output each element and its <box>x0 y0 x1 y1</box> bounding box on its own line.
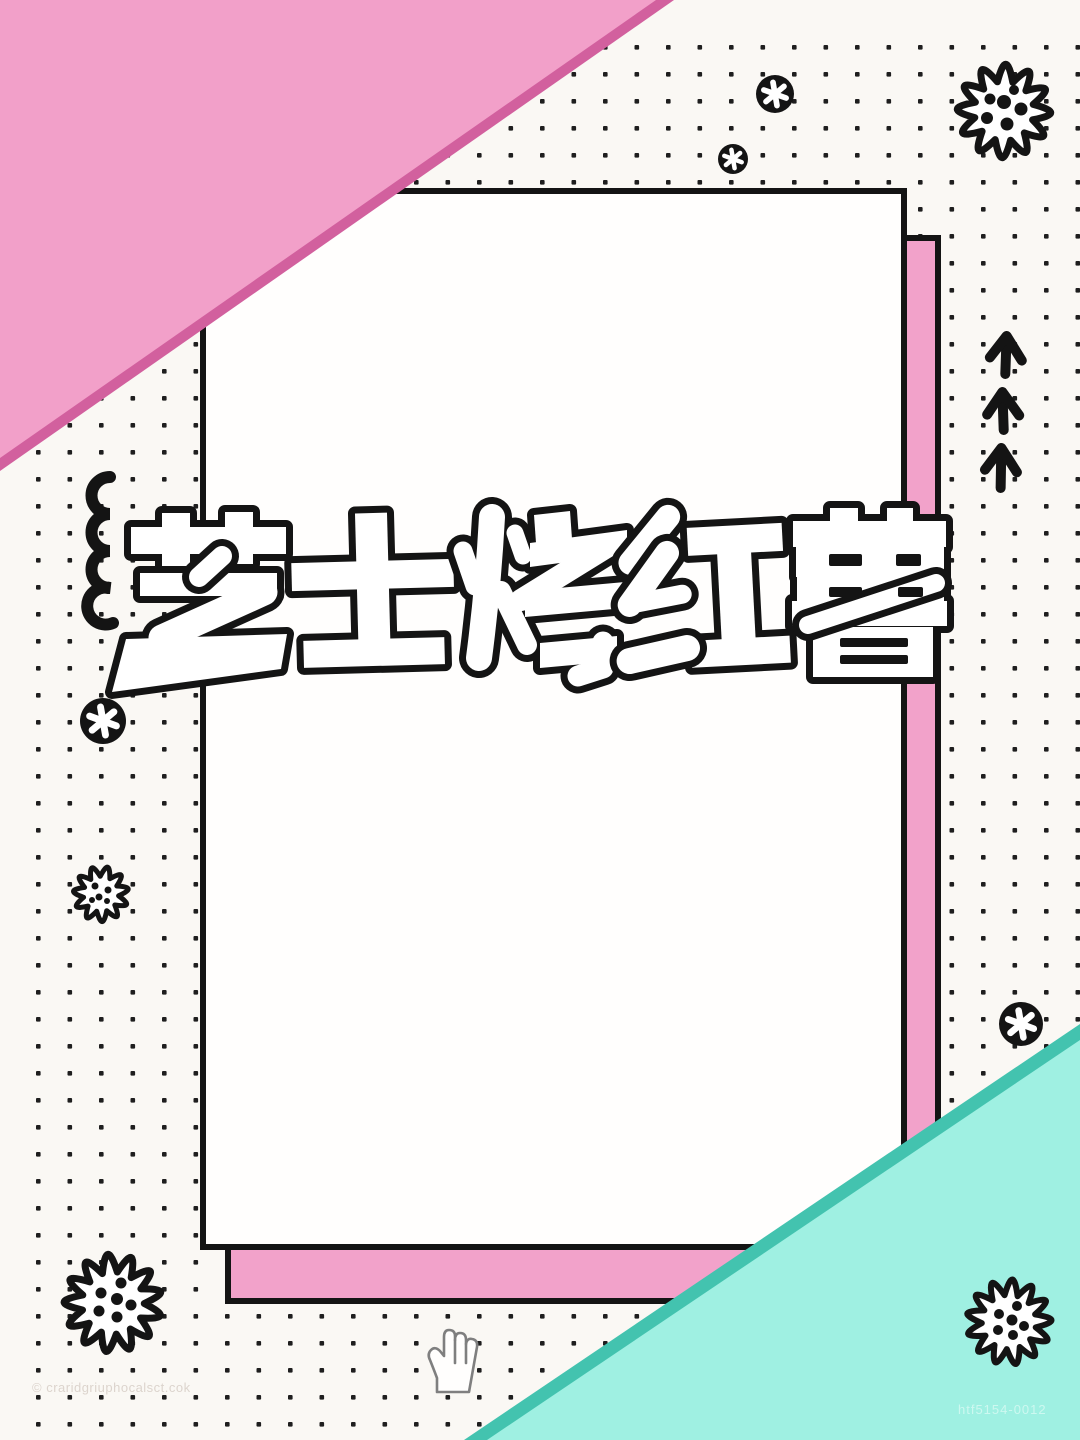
svg-text:htf5154-0012: htf5154-0012 <box>958 1402 1047 1417</box>
svg-text:© craridgriuphocalsct.cok: © craridgriuphocalsct.cok <box>32 1380 191 1395</box>
